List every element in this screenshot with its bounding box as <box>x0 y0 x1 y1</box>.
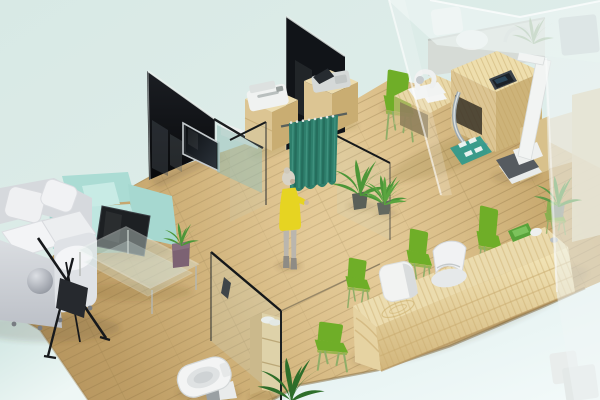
person-hand <box>304 200 309 205</box>
ball-cushion <box>27 268 53 294</box>
person-face <box>290 179 295 184</box>
render-canvas: 3D isometric interior render of a small … <box>0 0 600 400</box>
white-stool <box>378 260 419 303</box>
isometric-clinic-render: 3D isometric interior render of a small … <box>0 0 600 400</box>
